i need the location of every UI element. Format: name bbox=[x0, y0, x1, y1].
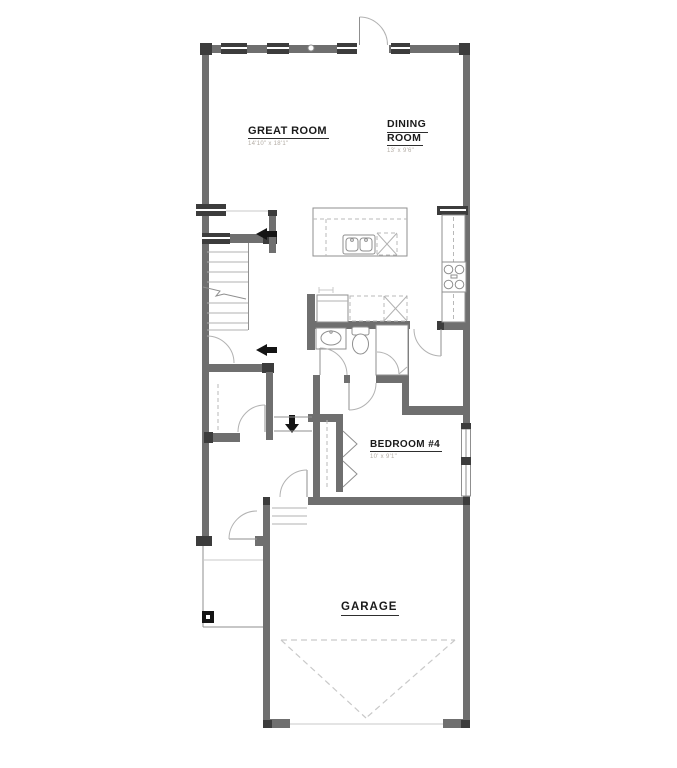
bedroom4-label: BEDROOM #4 10' x 9'1" bbox=[370, 439, 442, 461]
doors bbox=[229, 329, 441, 539]
kitchen-counter bbox=[442, 215, 466, 322]
kitchen-island bbox=[313, 208, 407, 256]
range-cooktop-icon bbox=[442, 262, 466, 292]
direction-arrows bbox=[256, 228, 299, 433]
garage-label: GARAGE bbox=[341, 601, 399, 616]
garage bbox=[281, 640, 455, 724]
window-bedroom-1 bbox=[461, 423, 471, 458]
front-door bbox=[360, 17, 388, 45]
porch bbox=[202, 546, 263, 627]
porch-post-icon bbox=[202, 611, 214, 623]
wall-column-icon bbox=[308, 45, 314, 51]
hall-down-arrow-icon bbox=[285, 415, 299, 433]
upper-cabinet-dashed bbox=[350, 296, 407, 321]
bedroom4-dims: 10' x 9'1" bbox=[370, 454, 442, 461]
bedroom4-name: BEDROOM #4 bbox=[370, 439, 442, 452]
bathroom-door bbox=[320, 348, 347, 375]
washer-box bbox=[317, 295, 348, 322]
window-bedroom-2 bbox=[461, 457, 471, 496]
window-top-3 bbox=[337, 43, 357, 54]
bedroom-door bbox=[349, 383, 376, 410]
great-room-dims: 14'10" x 18'1" bbox=[248, 141, 329, 148]
staircase bbox=[203, 243, 249, 363]
bifold-door-icon bbox=[343, 461, 357, 487]
shower-icon bbox=[376, 325, 408, 375]
hall-door bbox=[414, 329, 441, 356]
dining-room-dims: 13' x 9'6" bbox=[387, 148, 428, 155]
garage-door-swing-lines bbox=[281, 640, 455, 718]
windows bbox=[196, 43, 471, 496]
understair-door-arc bbox=[207, 336, 234, 363]
stair-treads bbox=[207, 252, 248, 330]
floor-plan-page: GREAT ROOM 14'10" x 18'1" DINING ROOM 13… bbox=[0, 0, 677, 768]
exterior-walls bbox=[196, 42, 470, 728]
window-left-wall bbox=[196, 204, 226, 216]
closet-door bbox=[238, 405, 265, 432]
great-room-label: GREAT ROOM 14'10" x 18'1" bbox=[248, 125, 329, 148]
laundry-cabinets bbox=[317, 287, 407, 322]
window-top-2 bbox=[267, 43, 289, 54]
great-room-name: GREAT ROOM bbox=[248, 125, 329, 139]
stair-lower-arrow-icon bbox=[256, 344, 277, 356]
window-top-4 bbox=[391, 43, 410, 54]
garage-name: GARAGE bbox=[341, 601, 399, 616]
garage-entry-door bbox=[280, 470, 307, 497]
bifold-door-icon bbox=[343, 431, 357, 457]
porch-door bbox=[229, 511, 257, 539]
stair-break-line bbox=[203, 287, 246, 299]
vanity-sink-icon bbox=[316, 328, 346, 349]
dining-room-name-line1: DINING bbox=[387, 119, 428, 133]
double-sink-icon bbox=[343, 235, 375, 254]
toilet-icon bbox=[352, 327, 369, 354]
dining-room-name-line2: ROOM bbox=[387, 133, 423, 147]
window-top-1 bbox=[221, 43, 247, 54]
dining-room-label: DINING ROOM 13' x 9'6" bbox=[387, 119, 428, 155]
floor-plan-drawing bbox=[0, 0, 677, 768]
